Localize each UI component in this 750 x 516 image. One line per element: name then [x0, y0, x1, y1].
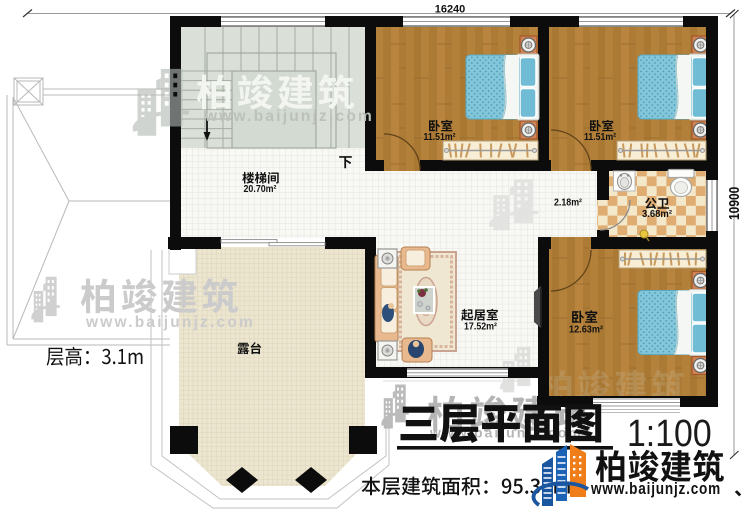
svg-text:12.63m²: 12.63m²	[569, 325, 604, 336]
svg-text:www.baijunjz.com: www.baijunjz.com	[590, 480, 721, 499]
svg-text:16240: 16240	[435, 4, 466, 16]
svg-text:11.51m²: 11.51m²	[584, 132, 617, 143]
svg-text:10900: 10900	[726, 187, 743, 220]
svg-text:2.18m²: 2.18m²	[554, 198, 583, 209]
svg-text:www.baijunjz.com: www.baijunjz.com	[204, 108, 374, 125]
svg-text:17.52m²: 17.52m²	[464, 322, 498, 333]
svg-text:20.70m²: 20.70m²	[244, 184, 278, 195]
svg-text:11.51m²: 11.51m²	[424, 132, 457, 143]
svg-text:1:100: 1:100	[627, 411, 712, 454]
svg-text:www.baijunjz.com: www.baijunjz.com	[85, 314, 255, 331]
svg-text:3.68m²: 3.68m²	[642, 209, 673, 220]
